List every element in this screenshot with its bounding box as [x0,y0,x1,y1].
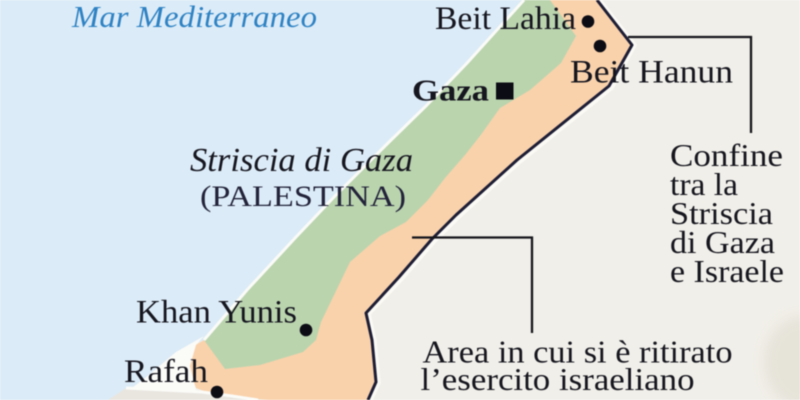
svg-text:Beit Lahia: Beit Lahia [435,1,576,37]
svg-text:(PALESTINA): (PALESTINA) [200,180,406,213]
svg-text:Khan Yunis: Khan Yunis [136,295,297,331]
svg-text:Striscia di Gaza: Striscia di Gaza [190,142,413,179]
svg-text:Beit Hanun: Beit Hanun [570,55,733,91]
svg-text:Mar Mediterraneo: Mar Mediterraneo [71,0,317,34]
svg-text:e Israele: e Israele [670,253,784,289]
svg-text:l’esercito israeliano: l’esercito israeliano [421,361,695,397]
svg-text:Gaza: Gaza [412,73,490,108]
svg-text:Rafah: Rafah [124,354,209,390]
